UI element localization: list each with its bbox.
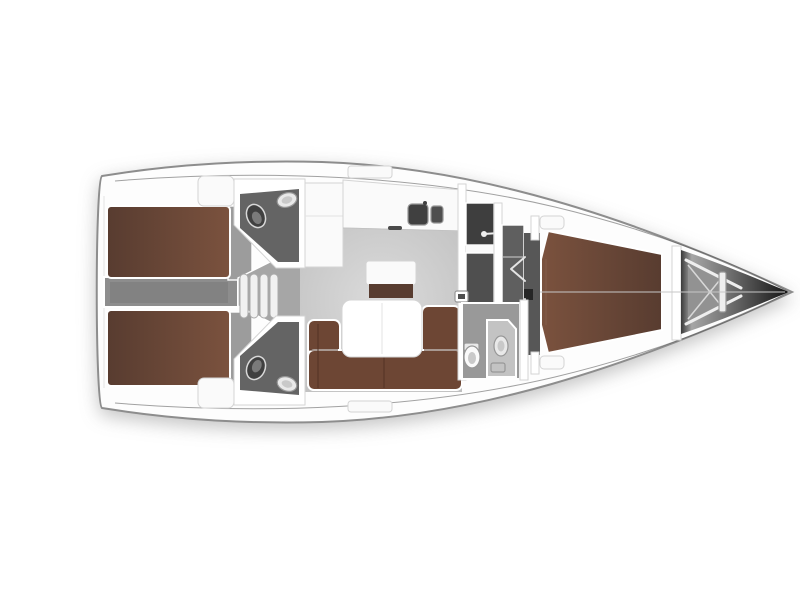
corner-pad-top [540,216,564,229]
deck-hatch-port [198,176,234,206]
island-seat-top [366,261,416,285]
hanging-rod-knob [481,231,487,237]
step-4 [270,274,278,318]
forward-head-wall [520,300,528,380]
locker-bulkhead [494,203,502,303]
deck-hatch-starboard [198,378,234,408]
galley-handle [388,226,402,230]
galley-sink-large [408,204,428,225]
yacht-floor-plan [0,0,800,600]
aft-cabin-starboard-berth [107,310,230,386]
deck-hatch-galley [348,166,392,178]
step-3 [260,274,268,318]
aft-cabin-port-berth [107,206,230,278]
step-2 [250,274,258,318]
step-1 [240,274,248,318]
fwd-bulkhead-top [531,216,539,240]
bow-bulkhead [672,246,681,340]
deck-hatch-salon [348,401,392,412]
fwd-bulkhead-bottom [531,352,539,374]
wet-locker-lower [466,253,494,303]
nav-cabinet [305,183,343,267]
galley-sink-small [431,206,443,223]
vestibule-floor [502,225,524,303]
forward-head [462,300,528,380]
engine-corridor-hatch [110,282,228,303]
switch-box-inner [458,294,465,299]
sink-bowl [498,341,505,352]
corner-pad-bottom [540,356,564,369]
island-seat-base [369,284,413,298]
wet-locker-shelf [466,245,494,253]
floor-plan-canvas [0,0,800,600]
toilet-seat [468,352,476,364]
wet-locker [466,203,494,245]
galley-faucet-icon [423,201,427,205]
boat-plan [97,162,792,423]
